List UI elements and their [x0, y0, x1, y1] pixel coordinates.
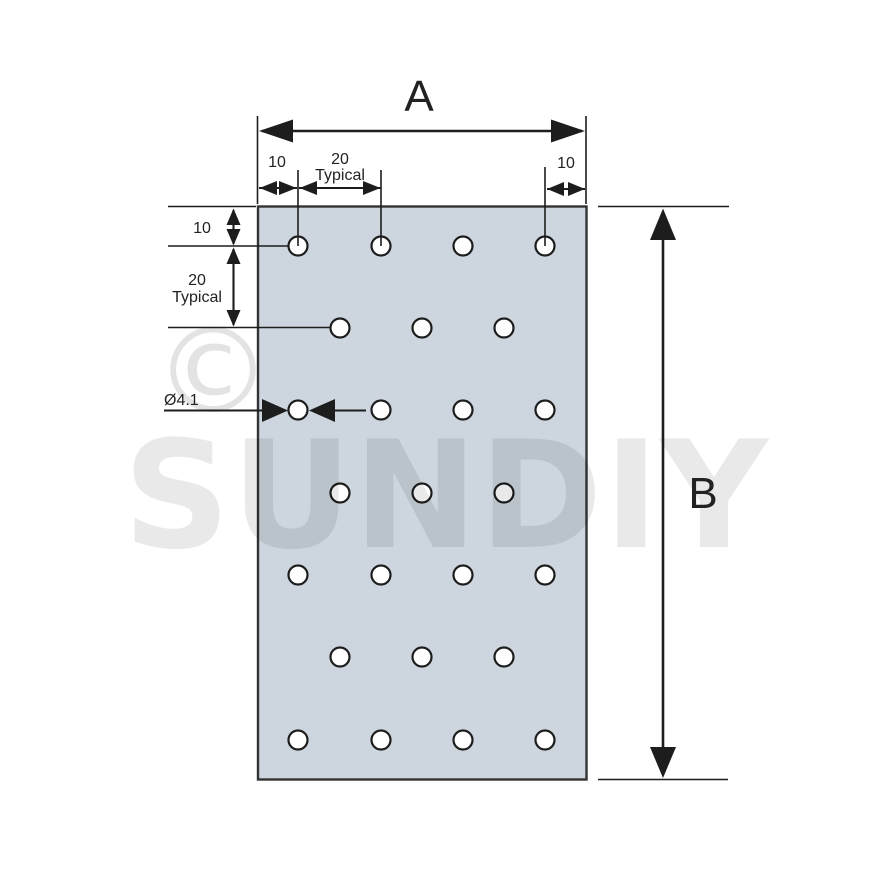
arrowhead-up-icon	[650, 209, 676, 241]
arrowhead-down-icon	[650, 747, 676, 778]
dim-label-top-left-margin: 10	[268, 154, 286, 171]
arrowhead-icon	[260, 181, 278, 195]
arrowhead-icon	[363, 181, 381, 195]
watermark-brand-text: SUNDIY	[123, 410, 770, 583]
arrowhead-icon	[279, 181, 297, 195]
dim-label-top-pitch-value: 20	[331, 151, 349, 168]
arrowhead-left-icon	[259, 120, 293, 143]
dim-label-side-top-margin: 10	[193, 220, 211, 237]
hole	[331, 319, 350, 338]
dim-label-top-pitch-qualifier: Typical	[315, 167, 365, 184]
arrowhead-icon	[227, 229, 241, 246]
dim-label-b: B	[688, 469, 717, 518]
dim-label-side-pitch-value: 20	[188, 272, 206, 289]
hole	[454, 731, 473, 750]
hole	[495, 319, 514, 338]
hole	[413, 648, 432, 667]
hole	[495, 648, 514, 667]
arrowhead-icon	[568, 182, 585, 196]
arrowhead-icon	[227, 248, 241, 265]
arrowhead-right-icon	[551, 120, 585, 143]
arrowhead-icon	[547, 182, 564, 196]
hole	[331, 648, 350, 667]
hole	[536, 731, 555, 750]
hole	[413, 319, 432, 338]
arrowhead-icon	[227, 209, 241, 226]
nail-plate-drawing: © SUNDIY A 10 20 Typical 10	[0, 0, 880, 880]
dim-label-side-pitch-qualifier: Typical	[172, 289, 222, 306]
hole	[289, 731, 308, 750]
hole	[372, 731, 391, 750]
dim-label-top-right-margin: 10	[557, 155, 575, 172]
dim-label-a: A	[404, 72, 434, 121]
dimension-overall-width: A	[258, 72, 587, 204]
hole	[454, 237, 473, 256]
dim-label-hole-diameter: Ø4.1	[164, 392, 199, 409]
technical-drawing-canvas: © SUNDIY A 10 20 Typical 10	[0, 0, 880, 880]
